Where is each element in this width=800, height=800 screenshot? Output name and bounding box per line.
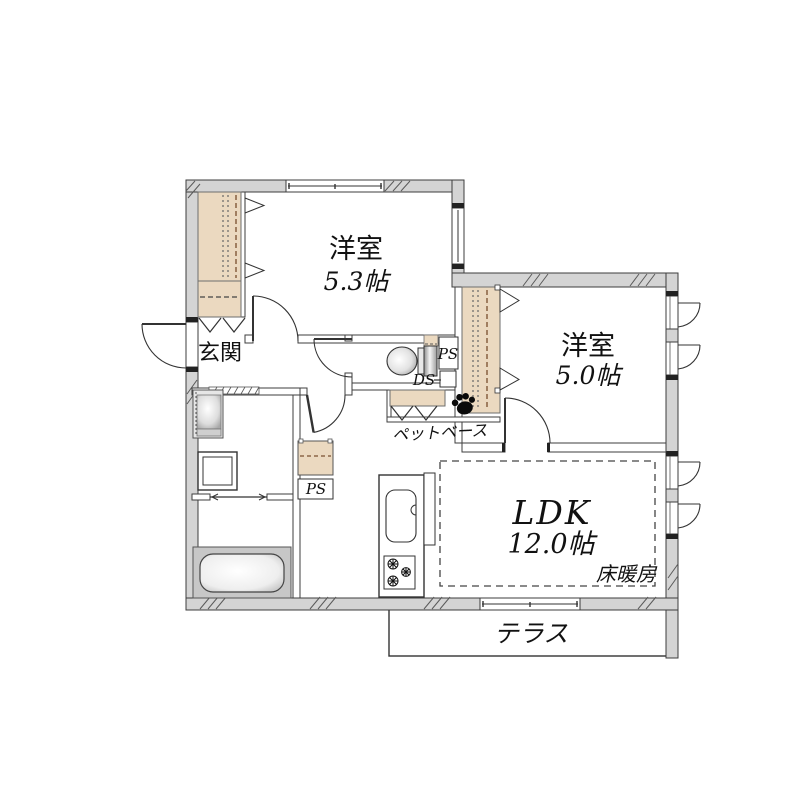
door-hall bbox=[307, 395, 345, 432]
room-size-western1: 5.3帖 bbox=[324, 267, 392, 296]
washbasin-icon bbox=[193, 390, 223, 438]
kitchen-sink-icon bbox=[386, 490, 416, 542]
door-room53 bbox=[253, 296, 298, 341]
room-label-western2: 洋室 bbox=[561, 331, 615, 362]
wall-top-b bbox=[452, 273, 678, 287]
pet-base-nook bbox=[390, 390, 478, 420]
washing-machine-icon bbox=[198, 452, 237, 490]
closet-50 bbox=[462, 285, 519, 413]
window-side-53 bbox=[452, 203, 464, 269]
ds-toilet-label: DS bbox=[412, 371, 435, 389]
door-toilet bbox=[314, 339, 352, 377]
floorplan-drawing: 洋室 5.3帖 洋室 5.0帖 LDK 12.0帖 床暖房 玄関 テラス PS … bbox=[0, 0, 800, 800]
window-top-sliding bbox=[286, 180, 384, 192]
window-bottom-sliding bbox=[480, 598, 580, 610]
entrance-label: 玄関 bbox=[198, 341, 242, 366]
pet-base-label: ペットベース bbox=[392, 421, 488, 445]
door-room50 bbox=[502, 398, 550, 452]
gas-stove-icon bbox=[384, 556, 415, 589]
shoe-cabinet bbox=[198, 281, 245, 332]
kitchen-counter bbox=[379, 473, 435, 597]
floorplan-page: 洋室 5.3帖 洋室 5.0帖 LDK 12.0帖 床暖房 玄関 テラス PS … bbox=[0, 0, 800, 800]
terrace-label: テラス bbox=[494, 619, 569, 648]
hall-storage bbox=[298, 439, 333, 475]
ps-hall-label: PS bbox=[305, 480, 326, 498]
room-size-ldk: 12.0帖 bbox=[507, 529, 598, 560]
bathtub-icon bbox=[193, 547, 291, 598]
room-label-western1: 洋室 bbox=[329, 234, 383, 265]
window-casement-ldk bbox=[666, 451, 700, 539]
sliding-door-bath bbox=[210, 494, 267, 500]
entrance-door bbox=[142, 317, 198, 372]
floor-heating-label: 床暖房 bbox=[596, 562, 658, 586]
room-size-western2: 5.0帖 bbox=[556, 361, 624, 390]
closet-53 bbox=[198, 192, 264, 281]
window-casement-50 bbox=[666, 291, 700, 380]
wall-terrace-right bbox=[666, 610, 678, 658]
ps-toilet-label: PS bbox=[437, 345, 458, 363]
room-label-ldk: LDK bbox=[511, 493, 591, 532]
